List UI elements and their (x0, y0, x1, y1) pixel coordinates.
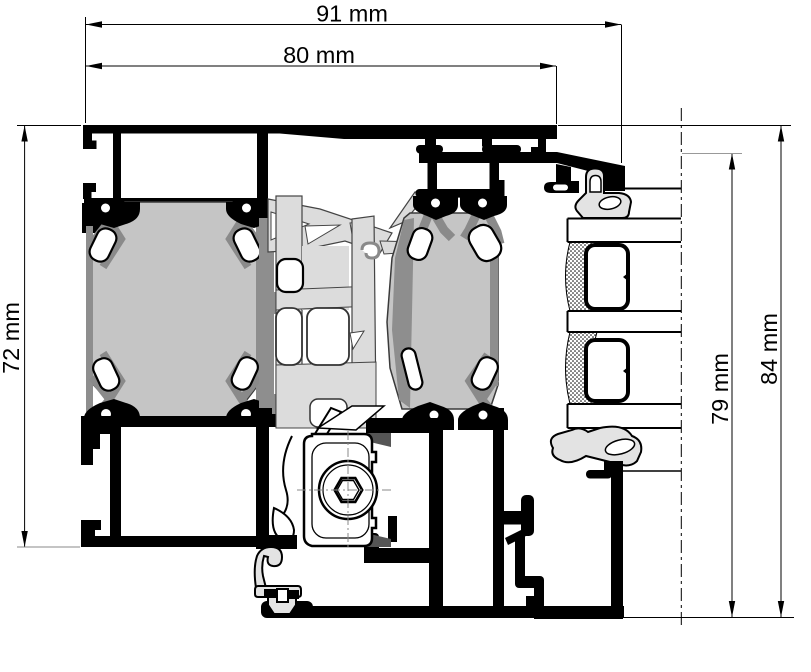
svg-text:91 mm: 91 mm (316, 1, 388, 27)
svg-text:84 mm: 84 mm (756, 313, 782, 385)
svg-text:80 mm: 80 mm (283, 42, 355, 68)
svg-text:72 mm: 72 mm (0, 302, 24, 374)
svg-text:79 mm: 79 mm (707, 353, 733, 425)
